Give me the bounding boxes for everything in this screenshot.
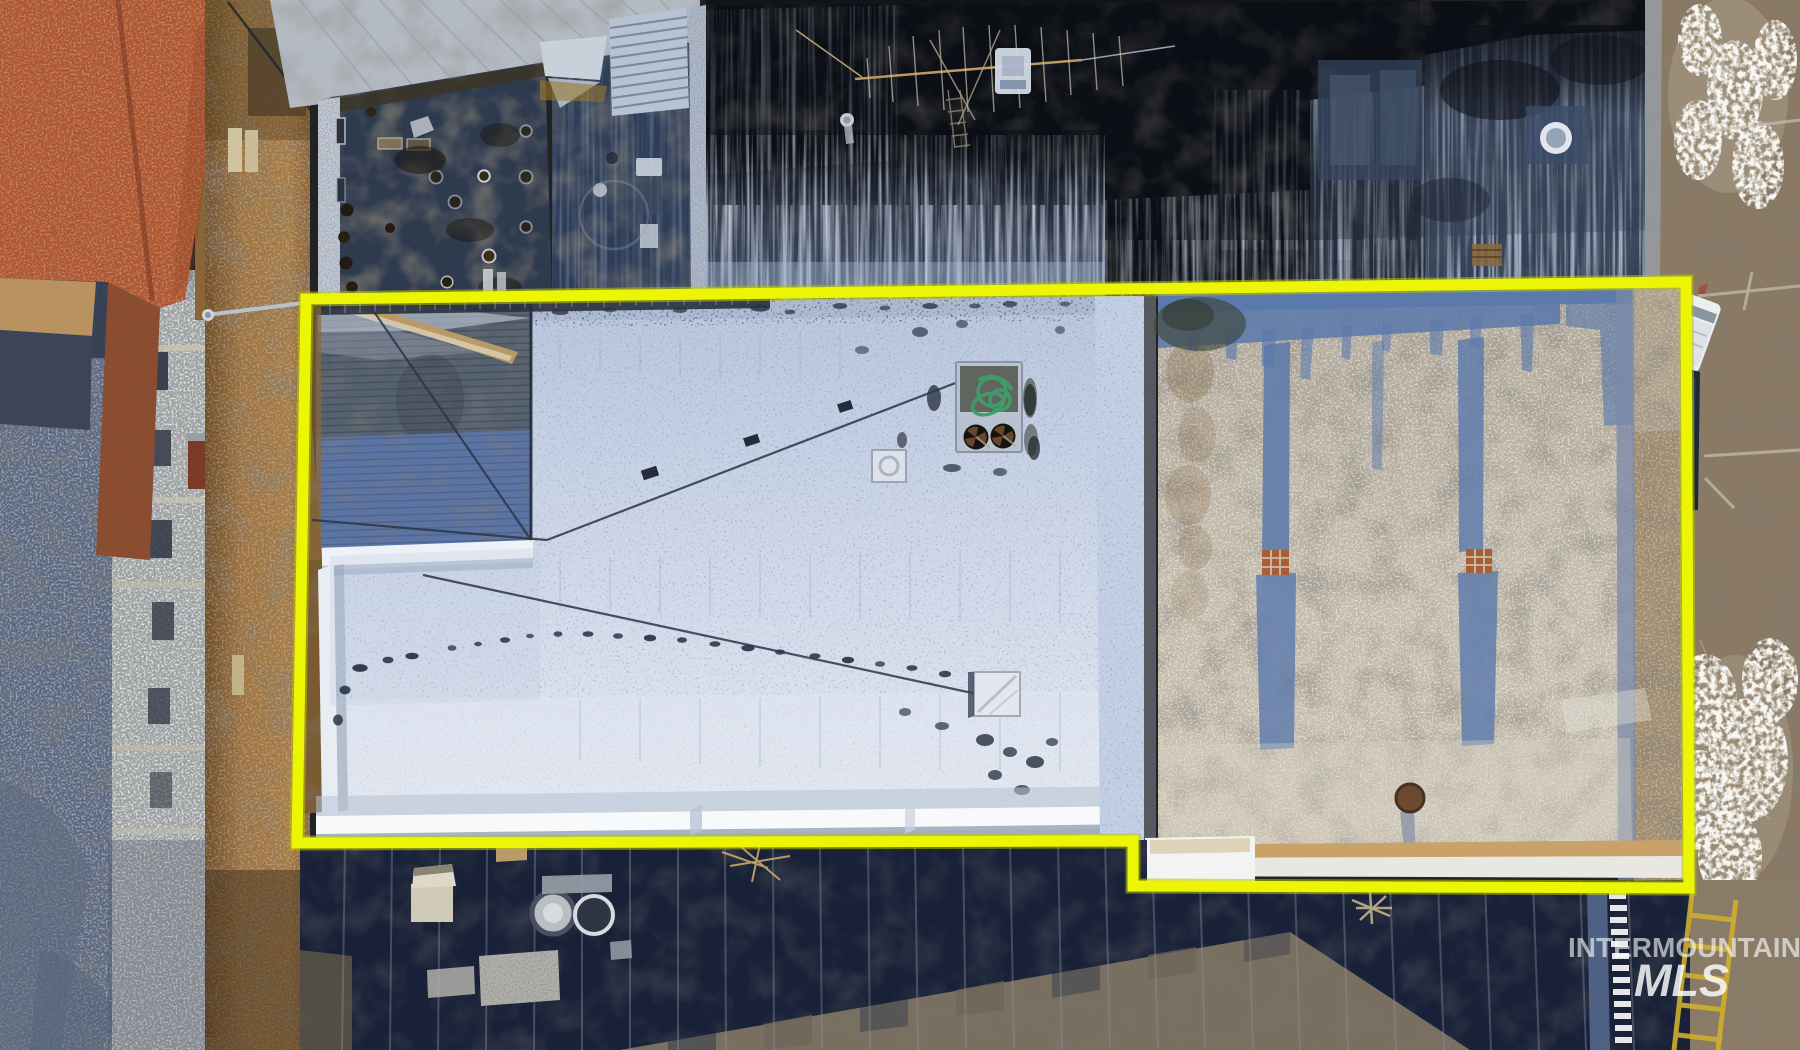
svg-text:MLS: MLS [1634, 955, 1729, 1006]
